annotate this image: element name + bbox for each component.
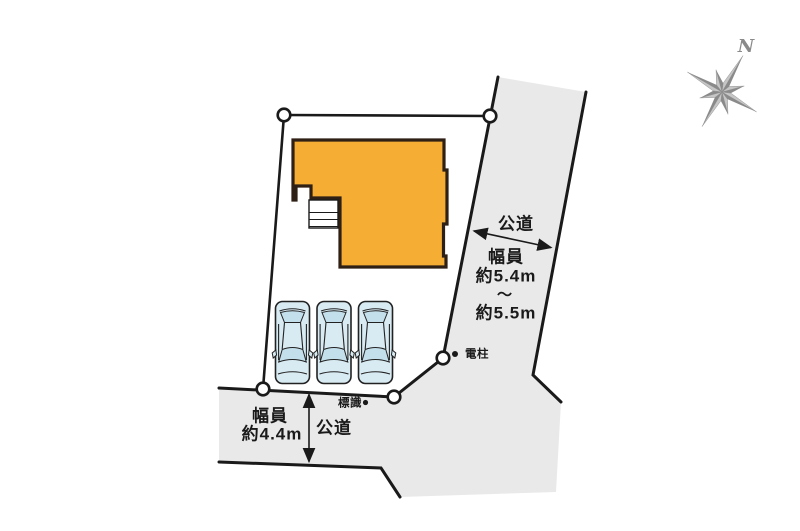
sign-dot	[363, 400, 368, 405]
boundary-corner-marker	[278, 109, 291, 122]
entrance-steps	[309, 200, 338, 228]
car	[355, 302, 396, 384]
right-road-range-separator: ～	[497, 288, 513, 303]
right-road-width-min: 約5.4m	[476, 268, 537, 285]
compass-north-icon	[667, 36, 777, 147]
right-road-width-label: 幅員	[488, 249, 524, 266]
plot-north-boundary	[284, 115, 490, 116]
bottom-road-name: 公道	[316, 420, 352, 437]
car	[314, 302, 355, 384]
plot-plan-drawing	[0, 0, 800, 531]
utility-pole-dot	[452, 351, 458, 357]
bottom-road-bottom-edge	[219, 462, 400, 497]
right-road-width-max: 約5.5m	[476, 305, 537, 322]
boundary-corner-marker	[257, 383, 270, 396]
bottom-road-width-label: 幅員	[252, 408, 288, 425]
car	[272, 302, 313, 384]
sign-label: 標識	[338, 398, 362, 410]
boundary-corner-marker	[437, 352, 450, 365]
boundary-corner-marker	[388, 391, 401, 404]
plot-plan-diagram: N 公道 幅員 約5.4m ～ 約5.5m 電柱 標識 幅員 約4.4m 公道	[0, 0, 800, 531]
boundary-corner-marker	[484, 110, 497, 123]
bottom-road-width-value: 約4.4m	[242, 426, 303, 443]
north-label: N	[738, 38, 754, 56]
utility-pole-label: 電柱	[465, 349, 489, 361]
right-road-name: 公道	[498, 216, 534, 233]
